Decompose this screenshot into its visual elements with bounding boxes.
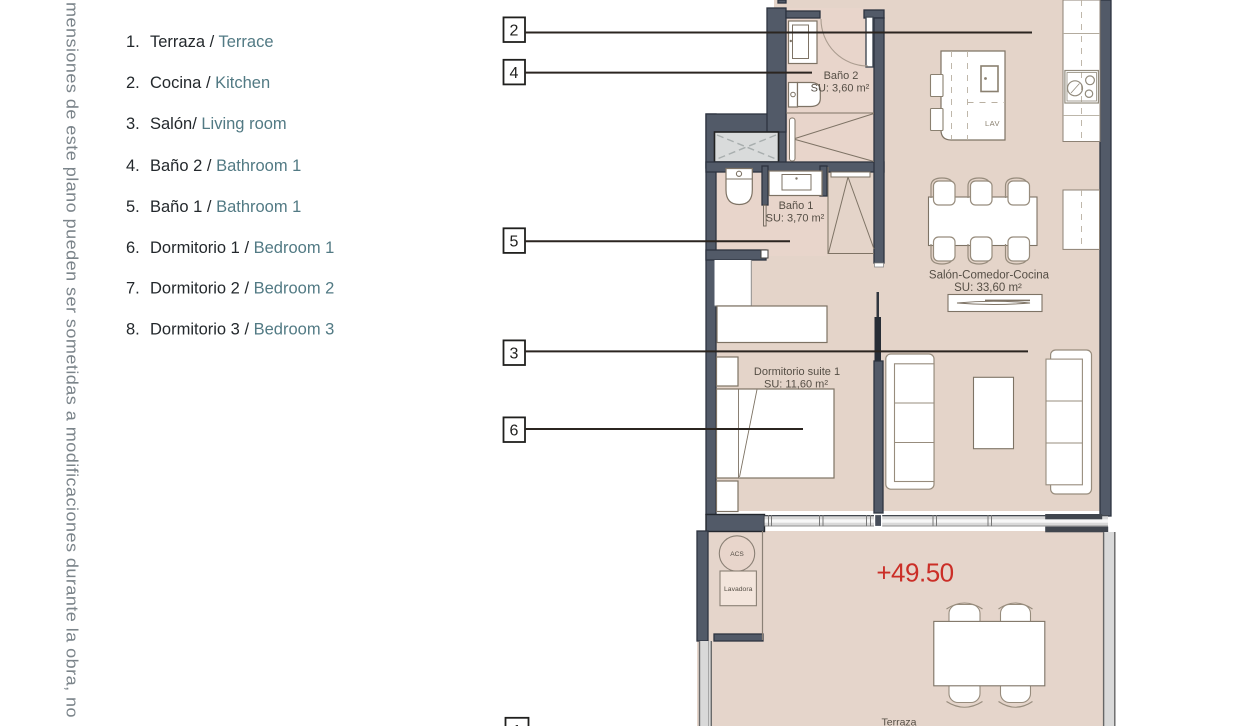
svg-text:Baño 1: Baño 1 <box>779 200 814 212</box>
svg-text:Dormitorio suite 1: Dormitorio suite 1 <box>754 366 840 378</box>
svg-text:+49.50: +49.50 <box>876 558 953 588</box>
svg-text:8.: 8. <box>126 321 140 339</box>
svg-text:1.: 1. <box>126 33 140 51</box>
svg-text:2.: 2. <box>126 74 140 92</box>
svg-text:SU: 3,70 m²: SU: 3,70 m² <box>766 213 825 225</box>
svg-text:5.: 5. <box>126 198 140 216</box>
svg-text:SU: 3,60 m²: SU: 3,60 m² <box>811 83 870 95</box>
svg-text:Baño 1 / Bathroom 1: Baño 1 / Bathroom 1 <box>150 198 301 216</box>
svg-text:Dormitorio 3 / Bedroom 3: Dormitorio 3 / Bedroom 3 <box>150 321 334 339</box>
svg-text:Baño 2 / Bathroom 1: Baño 2 / Bathroom 1 <box>150 157 301 175</box>
svg-text:Terraza / Terrace: Terraza / Terrace <box>150 33 274 51</box>
svg-text:6.: 6. <box>126 239 140 257</box>
svg-text:3: 3 <box>510 346 519 363</box>
svg-text:mensiones de este plano pueden: mensiones de este plano pueden ser somet… <box>63 2 82 718</box>
svg-text:5: 5 <box>510 234 519 251</box>
svg-text:2: 2 <box>510 23 519 40</box>
svg-text:6: 6 <box>510 423 519 440</box>
svg-text:7.: 7. <box>126 280 140 298</box>
svg-text:Dormitorio 1 / Bedroom 1: Dormitorio 1 / Bedroom 1 <box>150 239 334 257</box>
svg-text:3.: 3. <box>126 115 140 133</box>
svg-text:4.: 4. <box>126 157 140 175</box>
svg-text:Baño 2: Baño 2 <box>824 70 859 82</box>
svg-text:Dormitorio 2 / Bedroom 2: Dormitorio 2 / Bedroom 2 <box>150 280 334 298</box>
svg-text:Cocina / Kitchen: Cocina / Kitchen <box>150 74 270 92</box>
svg-text:SU: 33,60 m²: SU: 33,60 m² <box>954 282 1022 294</box>
svg-text:4: 4 <box>510 65 519 82</box>
svg-text:LAV: LAV <box>985 119 1000 128</box>
svg-text:Lavadora: Lavadora <box>724 586 753 593</box>
svg-text:Salón/ Living room: Salón/ Living room <box>150 115 287 133</box>
svg-text:Terraza: Terraza <box>881 717 916 726</box>
svg-text:Salón-Comedor-Cocina: Salón-Comedor-Cocina <box>929 270 1050 282</box>
svg-text:ACS: ACS <box>730 551 744 558</box>
